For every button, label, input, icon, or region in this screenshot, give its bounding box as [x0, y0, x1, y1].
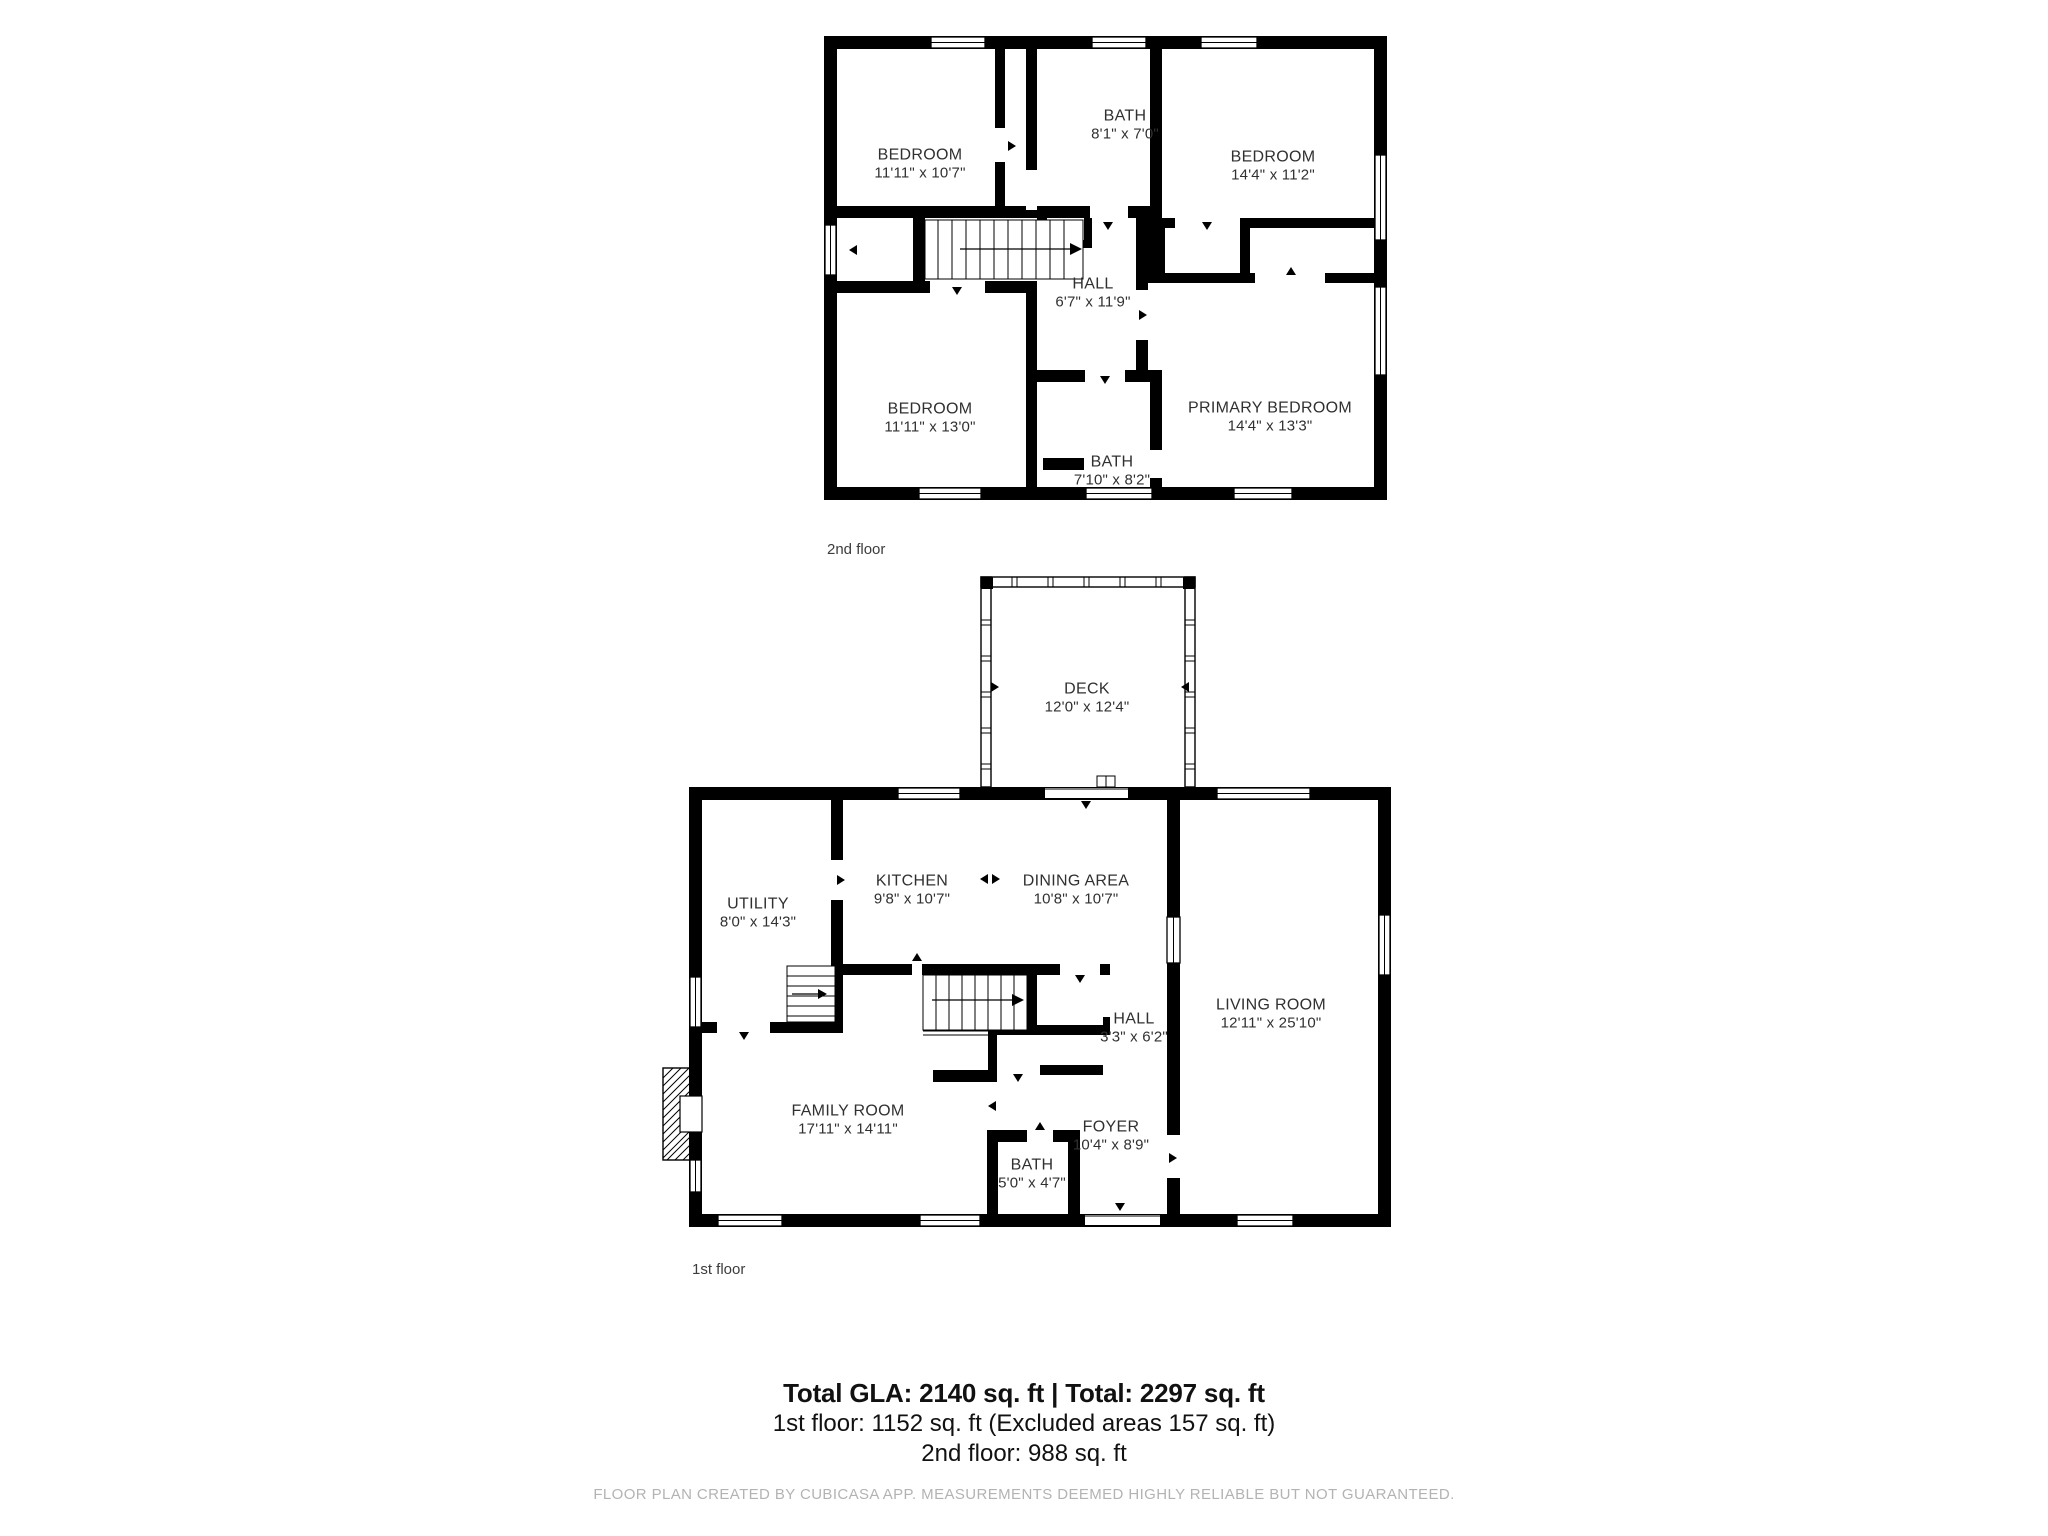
room-label-kitchen: KITCHEN 9'8" x 10'7"	[874, 873, 950, 908]
deck-door-opening	[1045, 788, 1128, 809]
room-label-deck: DECK 12'0" x 12'4"	[1045, 681, 1130, 716]
room-label-utility: UTILITY 8'0" x 14'3"	[720, 896, 796, 931]
second-floor-area-line: 2nd floor: 988 sq. ft	[0, 1439, 2048, 1469]
room-label-bath-bottom: BATH 7'10" x 8'2"	[1074, 454, 1150, 489]
first-floor-area-line: 1st floor: 1152 sq. ft (Excluded areas 1…	[0, 1409, 2048, 1439]
room-label-hall-1f: HALL 3'3" x 6'2"	[1100, 1011, 1168, 1046]
room-label-bath-1f: BATH 5'0" x 4'7"	[998, 1157, 1066, 1192]
room-label-living-room: LIVING ROOM 12'11" x 25'10"	[1216, 997, 1326, 1032]
caption-1st-floor: 1st floor	[692, 1261, 745, 1278]
floor-plan-drawing	[0, 0, 2048, 1536]
room-label-bedroom-bottom-left: BEDROOM 11'11" x 13'0"	[884, 401, 975, 436]
room-label-dining-area: DINING AREA 10'8" x 10'7"	[1023, 873, 1129, 908]
room-label-primary-bedroom: PRIMARY BEDROOM 14'4" x 13'3"	[1188, 400, 1352, 435]
area-summary: Total GLA: 2140 sq. ft | Total: 2297 sq.…	[0, 1378, 2048, 1469]
floor-plan-page: BEDROOM 11'11" x 10'7" BATH 8'1" x 7'0" …	[0, 0, 2048, 1536]
room-label-family-room: FAMILY ROOM 17'11" x 14'11"	[792, 1103, 905, 1138]
room-label-foyer: FOYER 10'4" x 8'9"	[1073, 1119, 1149, 1154]
staircase-2nd-floor	[925, 220, 1083, 279]
room-label-hall-2f: HALL 6'7" x 11'9"	[1055, 276, 1130, 311]
staircase-1st-floor	[923, 975, 1027, 1035]
disclaimer-text: FLOOR PLAN CREATED BY CUBICASA APP. MEAS…	[0, 1486, 2048, 1503]
caption-2nd-floor: 2nd floor	[827, 541, 885, 558]
basement-stair	[787, 966, 835, 1022]
total-area-line: Total GLA: 2140 sq. ft | Total: 2297 sq.…	[0, 1378, 2048, 1409]
room-label-bedroom-top-left: BEDROOM 11'11" x 10'7"	[874, 147, 965, 182]
room-label-bath-top: BATH 8'1" x 7'0"	[1091, 108, 1159, 143]
room-label-bedroom-top-right: BEDROOM 14'4" x 11'2"	[1231, 149, 1316, 184]
